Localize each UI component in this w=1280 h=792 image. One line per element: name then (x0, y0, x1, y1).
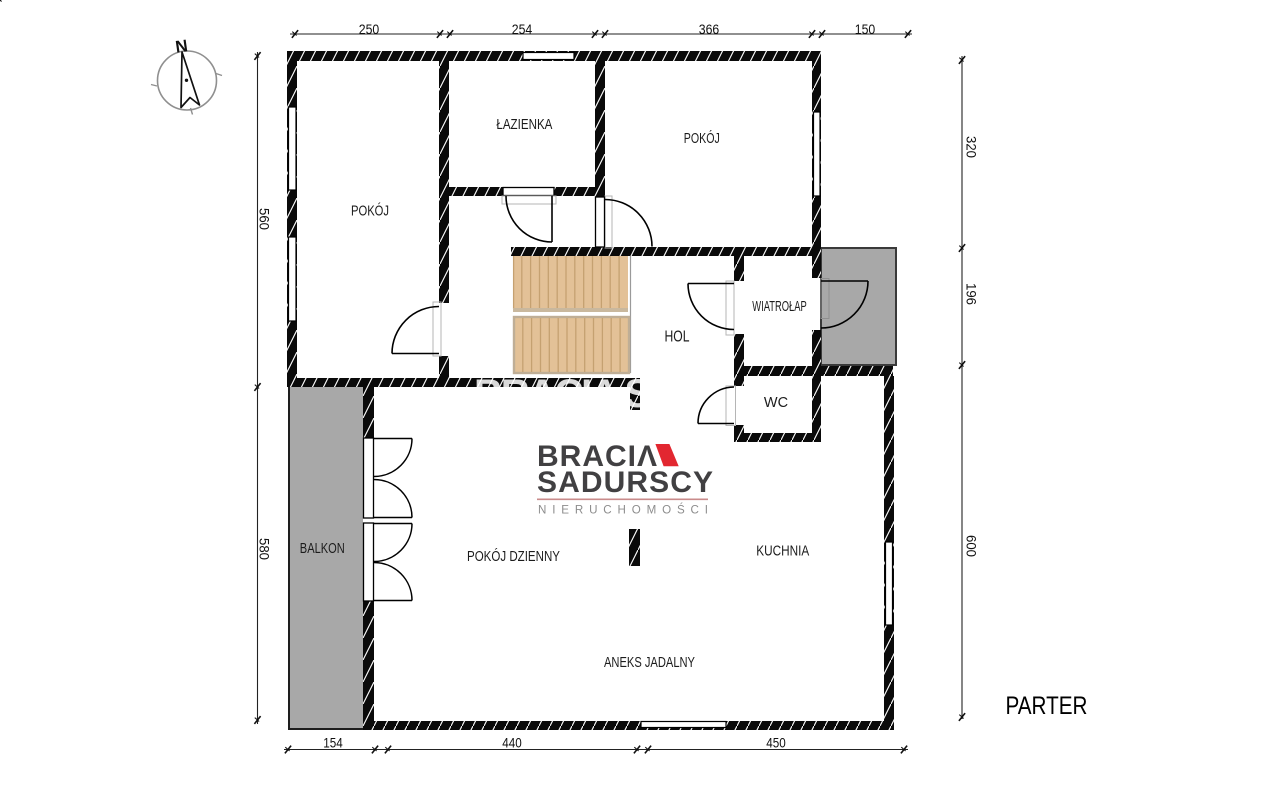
svg-text:NIERUCHOMOŚCI: NIERUCHOMOŚCI (538, 504, 708, 517)
svg-text:POKÓJ: POKÓJ (351, 203, 389, 220)
svg-text:HOL: HOL (665, 329, 690, 346)
svg-text:BRACIA S: BRACIA S (474, 372, 650, 416)
svg-text:SADURSCY: SADURSCY (537, 466, 714, 499)
svg-text:196: 196 (964, 283, 979, 305)
svg-text:580: 580 (257, 538, 272, 560)
svg-text:440: 440 (502, 735, 522, 751)
svg-text:250: 250 (359, 21, 380, 37)
svg-text:560: 560 (257, 208, 272, 230)
svg-text:BALKON: BALKON (300, 541, 345, 557)
svg-text:320: 320 (964, 136, 979, 158)
svg-text:POKÓJ DZIENNY: POKÓJ DZIENNY (467, 548, 560, 565)
svg-text:254: 254 (512, 21, 533, 37)
svg-text:POKÓJ: POKÓJ (684, 130, 720, 147)
svg-text:600: 600 (964, 535, 979, 557)
svg-text:450: 450 (766, 735, 786, 751)
svg-text:ANEKS JADALNY: ANEKS JADALNY (604, 655, 695, 671)
svg-text:PARTER: PARTER (1006, 692, 1088, 720)
svg-text:WIATROŁAP: WIATROŁAP (752, 299, 807, 315)
svg-text:ŁAZIENKA: ŁAZIENKA (496, 117, 552, 133)
svg-text:366: 366 (699, 21, 720, 37)
svg-text:WC: WC (764, 395, 788, 411)
svg-text:154: 154 (323, 735, 343, 751)
svg-text:KUCHNIA: KUCHNIA (756, 543, 809, 559)
svg-text:150: 150 (855, 21, 876, 37)
